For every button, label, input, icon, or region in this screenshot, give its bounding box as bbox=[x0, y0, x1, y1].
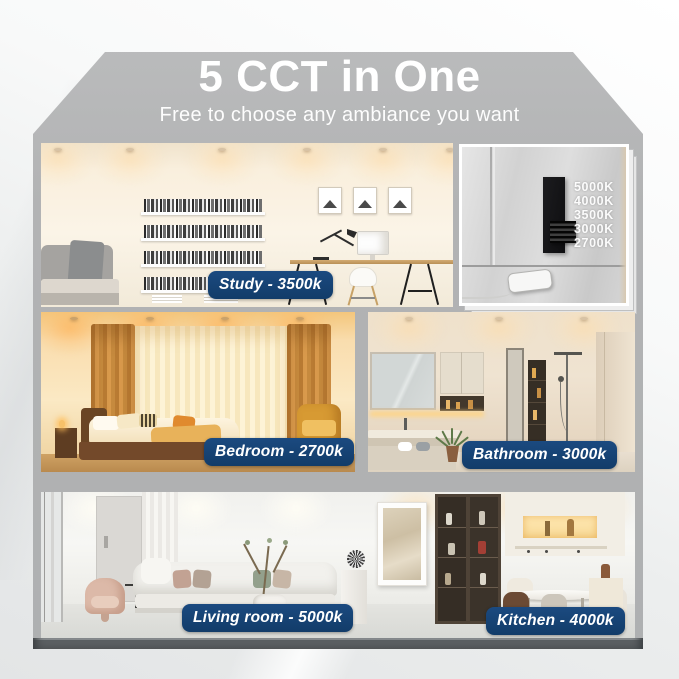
bathroom-right-wall bbox=[596, 332, 635, 452]
wire-junction-cover bbox=[507, 268, 553, 293]
vanity-mirror bbox=[370, 352, 436, 410]
downlight-icon bbox=[54, 148, 62, 151]
kitchen-upper-cabinets bbox=[505, 492, 625, 556]
lit-kitchen-niche bbox=[523, 516, 597, 538]
panel-seam-bottom bbox=[462, 265, 626, 267]
kitchen-label: Kitchen - 4000k bbox=[486, 607, 625, 635]
product-infographic: 5 CCT in One Free to choose any ambiance… bbox=[0, 0, 679, 679]
spiky-decor-ball bbox=[347, 550, 365, 568]
towel-roll bbox=[416, 442, 430, 451]
framed-mirror-door bbox=[506, 348, 524, 444]
downlight-icon bbox=[70, 317, 78, 320]
sofa-base bbox=[41, 293, 119, 305]
downlight-icon bbox=[146, 317, 154, 320]
downlight-glow bbox=[41, 143, 97, 187]
wall-art-frame bbox=[318, 187, 342, 214]
fixture-metal-surface: 5000K 4000K 3500K 3000K 2700K bbox=[462, 147, 626, 303]
cct-option: 3000K bbox=[574, 222, 614, 236]
window-curtain bbox=[41, 492, 63, 622]
downlight-icon bbox=[221, 317, 229, 320]
desk-lamp bbox=[313, 221, 355, 263]
downlight-icon bbox=[446, 148, 453, 151]
pillow bbox=[93, 416, 119, 430]
towel-roll bbox=[398, 442, 412, 451]
living-armchair bbox=[85, 576, 131, 622]
panel-seam bbox=[490, 147, 492, 267]
desk-trestle-leg bbox=[407, 264, 433, 306]
downlight-icon bbox=[126, 148, 134, 151]
downlight-icon bbox=[379, 148, 387, 151]
computer-monitor bbox=[357, 231, 391, 263]
living-room-label: Living room - 5000k bbox=[182, 604, 353, 632]
bathroom-label: Bathroom - 3000k bbox=[462, 441, 617, 469]
under-cabinet-light bbox=[370, 411, 484, 417]
cct-option: 2700K bbox=[574, 236, 614, 250]
house-baseboard bbox=[33, 638, 643, 649]
wall-art-frame bbox=[388, 187, 412, 214]
shower-set bbox=[554, 352, 588, 444]
downlight-glow bbox=[257, 492, 335, 536]
cct-option: 4000K bbox=[574, 194, 614, 208]
cct-options-list: 5000K 4000K 3500K 3000K 2700K bbox=[574, 180, 614, 250]
wall-art-large bbox=[377, 502, 427, 586]
faucet bbox=[404, 418, 407, 430]
bedside-lamp bbox=[59, 420, 65, 428]
downlight-icon bbox=[495, 317, 503, 320]
cct-option: 5000K bbox=[574, 180, 614, 194]
kitchen-display-cabinet bbox=[435, 494, 501, 624]
shower-niche-shelf bbox=[528, 360, 546, 442]
nightstand bbox=[55, 428, 77, 458]
page-subtitle: Free to choose any ambiance you want bbox=[0, 104, 679, 127]
downlight-icon bbox=[580, 317, 588, 320]
decor-figurine bbox=[601, 564, 610, 578]
page-title: 5 CCT in One bbox=[0, 52, 679, 102]
downlight-icon bbox=[405, 317, 413, 320]
panel-seam-highlight bbox=[493, 147, 495, 267]
book-stack bbox=[152, 295, 182, 303]
cct-option: 3500K bbox=[574, 208, 614, 222]
bedroom-label: Bedroom - 2700k bbox=[204, 438, 354, 466]
downlight-icon bbox=[303, 148, 311, 151]
cabinet-niche bbox=[440, 396, 484, 411]
desk-chair bbox=[347, 267, 381, 307]
branch-plant bbox=[237, 540, 297, 596]
cct-switch-closeup-photo: 5000K 4000K 3500K 3000K 2700K bbox=[459, 144, 629, 306]
downlight-icon bbox=[218, 148, 226, 151]
downlight-icon bbox=[296, 317, 304, 320]
wire bbox=[462, 287, 512, 299]
pillow bbox=[116, 413, 141, 429]
striped-pillow bbox=[139, 414, 157, 427]
cct-switch-slider[interactable] bbox=[550, 221, 576, 243]
study-label: Study - 3500k bbox=[208, 271, 333, 299]
study-sofa bbox=[41, 239, 123, 307]
wall-art-frame bbox=[353, 187, 377, 214]
edge-warm-strip bbox=[619, 147, 626, 303]
wall-cabinet bbox=[440, 352, 484, 394]
